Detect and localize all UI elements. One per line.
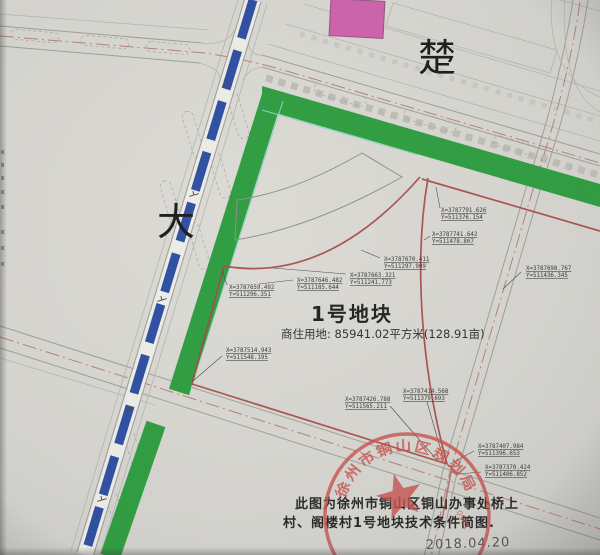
planning-map-photo: X=3787791.626 Y=511376.154 X=3787741.642… — [0, 0, 600, 555]
map-canvas: X=3787791.626 Y=511376.154 X=3787741.642… — [0, 0, 600, 555]
photo-artifacts — [0, 0, 600, 555]
